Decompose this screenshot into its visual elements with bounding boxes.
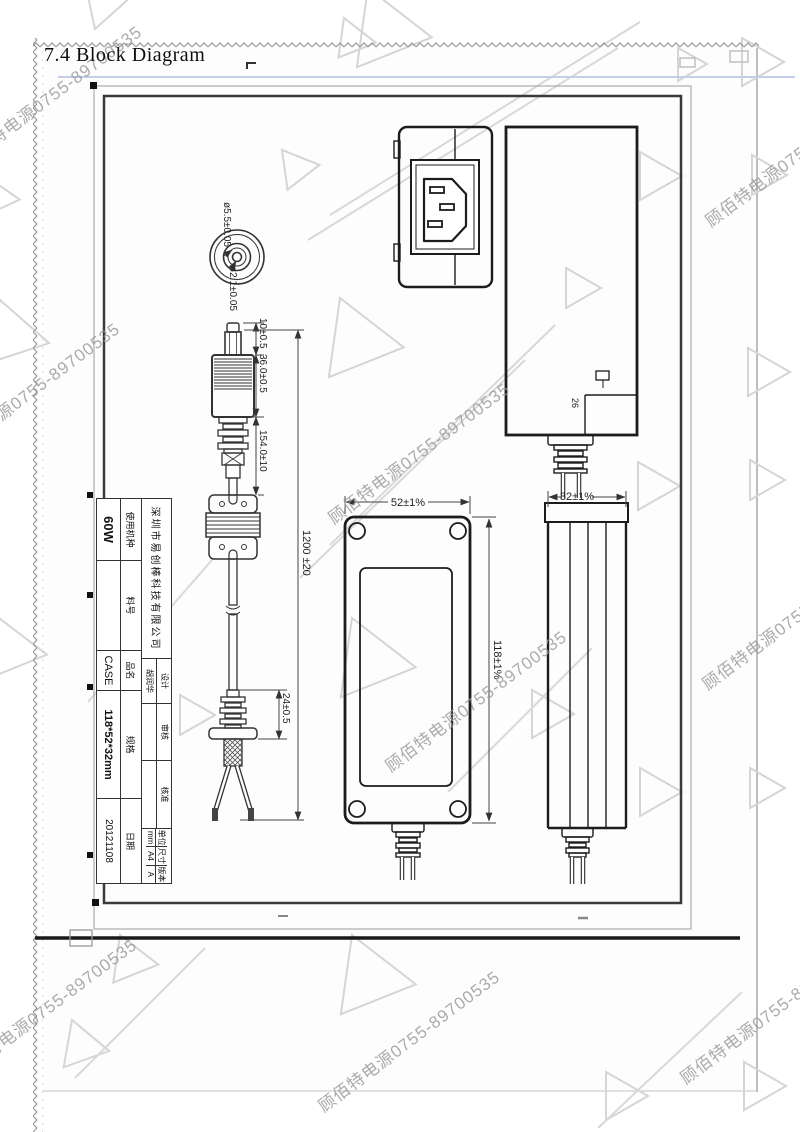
company-name: 深圳市易创棒科技有限公司 [141,499,171,659]
reviewer-label: 审核 [157,704,172,760]
dim-cable-length: 1200 ±20 [300,530,312,576]
document-page: ø5.5±0.05 ø2.1±0.05 [0,0,800,1132]
dim-case-thickness: 32±1% [560,491,594,503]
title-block: 深圳市易创棒科技有限公司 设计 胡润华 审核 核准 单位 mm 尺寸 [96,498,172,884]
designer-value: 胡润华 [142,659,157,703]
sheet-size-cell: 尺寸 A4 [146,847,167,865]
reviewer-value [142,704,157,760]
product-name-label: 品名 [120,651,141,691]
spec-label: 规格 [120,691,141,799]
model-value: 60W [97,499,120,561]
version-label: 版本 [155,866,167,883]
dim-body-length: 36.0±0.5 [257,354,268,393]
sheet-size-label: 尺寸 [155,847,167,864]
product-name-value: CASE [97,651,120,691]
reviewer-cell: 审核 [141,704,171,761]
dim-plug-inner-dia: ø2.1±0.05 [227,266,238,311]
unit-cell: 单位 mm [146,829,167,847]
dim-plug-outer-dia: ø5.5±0.05 [221,202,232,247]
dim-tip-length: 10±0.5 [257,318,268,349]
approver-value [142,761,157,828]
spec-value: 118*52*32mm [97,691,120,799]
model-label: 使用机种 [120,499,141,561]
dim-side-note: 26 [570,398,580,408]
sheet-size-value: A4 [146,847,155,864]
unit-label: 单位 [155,829,167,846]
approver-label: 核准 [157,761,172,828]
braided-section [224,739,242,766]
date-value: 20121108 [97,799,120,883]
designer-label: 设计 [157,659,172,703]
section-heading: 7.4 Block Diagram [44,44,205,67]
approver-cell: 核准 [141,761,171,829]
dim-case-length: 118±1% [491,640,503,680]
designer-cell: 设计 胡润华 [141,659,171,704]
part-number-value [97,561,120,651]
date-label: 日期 [120,799,141,883]
dim-case-width: 52±1% [391,497,425,509]
unit-value: mm [146,829,155,846]
version-cell: 版本 A [146,866,167,883]
version-value: A [146,866,155,883]
dim-lead-length: 154.0±10 [257,430,268,472]
dim-tail-bushing: 24±0.5 [280,693,291,724]
part-number-label: 料号 [120,561,141,651]
units-grid: 单位 mm 尺寸 A4 版本 A [141,829,171,883]
